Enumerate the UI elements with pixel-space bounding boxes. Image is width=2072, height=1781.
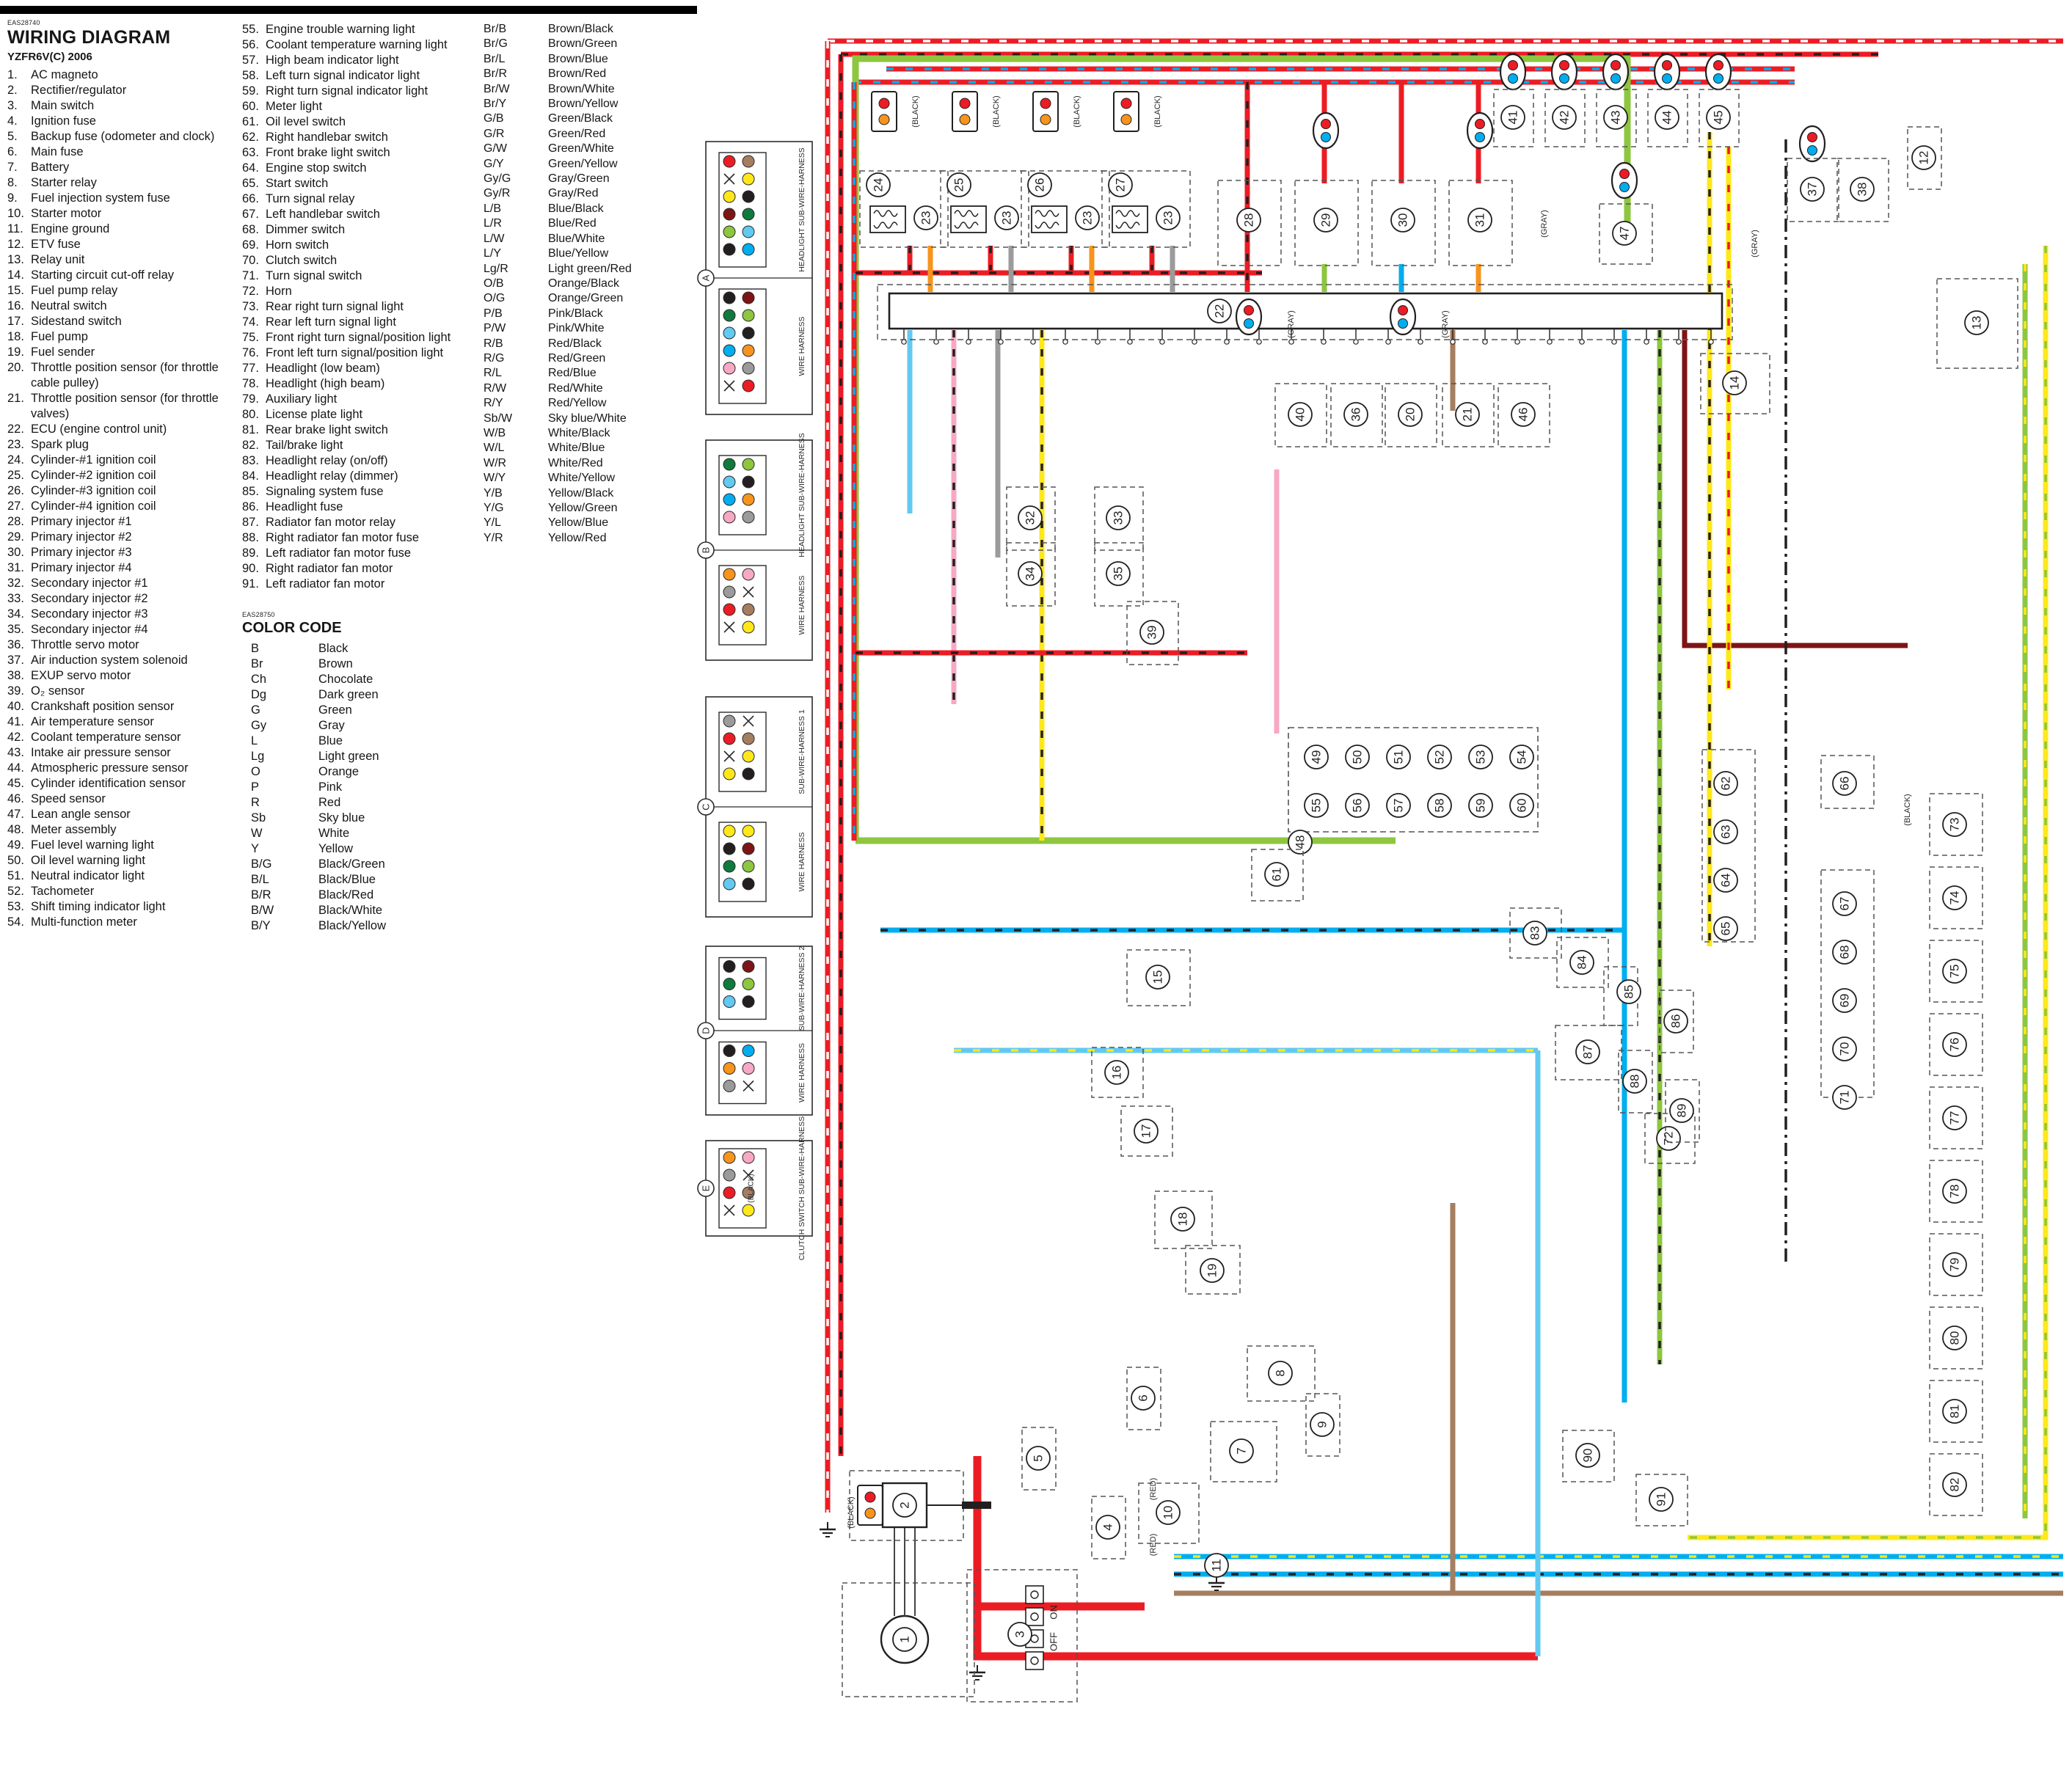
oval-connector bbox=[1236, 299, 1261, 334]
component-number: 36 bbox=[1349, 408, 1363, 422]
component-number: 52 bbox=[1433, 750, 1447, 764]
connector-dot bbox=[743, 750, 754, 762]
component-number: 23 bbox=[919, 211, 933, 225]
ecu-pin-terminal bbox=[1547, 340, 1552, 344]
component-number: 20 bbox=[1404, 408, 1418, 422]
component-number: 31 bbox=[1473, 213, 1487, 227]
component-number: 91 bbox=[1655, 1493, 1668, 1507]
component-number: 82 bbox=[1948, 1478, 1962, 1492]
ecu-pin-terminal bbox=[1128, 340, 1132, 344]
joint-letter: C bbox=[701, 803, 712, 810]
connector-dot bbox=[723, 586, 735, 598]
connector-dot bbox=[960, 98, 970, 109]
connector-dot bbox=[743, 380, 754, 392]
connector-dot bbox=[1040, 114, 1051, 125]
component-number: 17 bbox=[1139, 1124, 1153, 1138]
component-number: 81 bbox=[1948, 1405, 1962, 1419]
component-number: 90 bbox=[1581, 1449, 1595, 1463]
oval-connector bbox=[1552, 54, 1577, 89]
switch-position-off: OFF bbox=[1048, 1632, 1059, 1651]
ecu-pin-terminal bbox=[1321, 340, 1326, 344]
component-number: 22 bbox=[1213, 304, 1227, 318]
component-number: 40 bbox=[1294, 408, 1307, 422]
component-number: 63 bbox=[1719, 825, 1733, 839]
connector-dot bbox=[879, 98, 889, 109]
component-number: 61 bbox=[1270, 868, 1284, 882]
connector-dot bbox=[743, 568, 754, 580]
oval-connector bbox=[1467, 113, 1492, 148]
connector-dot bbox=[1714, 61, 1723, 70]
ecu-pin-terminal bbox=[1225, 340, 1229, 344]
component-number: 50 bbox=[1351, 750, 1365, 764]
harness-label: WIRE HARNESS bbox=[798, 316, 806, 376]
component-number: 86 bbox=[1669, 1014, 1683, 1028]
harness-label: WIRE HARNESS bbox=[798, 832, 806, 891]
ecu-pin-terminal bbox=[1451, 340, 1455, 344]
component-number: 67 bbox=[1838, 897, 1852, 911]
connector-dot bbox=[723, 825, 735, 837]
component-number: 14 bbox=[1728, 376, 1742, 390]
connector-dot bbox=[1321, 120, 1331, 129]
connector-dot bbox=[1714, 74, 1723, 84]
ignition-coil-symbol bbox=[1112, 206, 1148, 233]
connector-dot bbox=[723, 996, 735, 1008]
component-number: 5 bbox=[1032, 1455, 1046, 1461]
connector-dot bbox=[723, 345, 735, 356]
component-number: 85 bbox=[1622, 985, 1636, 999]
component-number: 7 bbox=[1235, 1447, 1249, 1454]
pin-connector bbox=[1114, 92, 1139, 131]
component-number: 19 bbox=[1205, 1264, 1219, 1278]
connector-dot bbox=[1611, 74, 1621, 84]
component-number: 74 bbox=[1948, 891, 1962, 905]
component-number: 70 bbox=[1838, 1042, 1852, 1056]
component-number: 26 bbox=[1033, 178, 1047, 192]
connector-dot bbox=[723, 843, 735, 855]
connector-dot bbox=[1620, 169, 1630, 179]
harness-label: HEADLIGHT SUB-WIRE-HARNESS bbox=[798, 147, 806, 272]
wiring-schematic: HEADLIGHT SUB-WIRE-HARNESSWIRE HARNESSAH… bbox=[0, 0, 2072, 1781]
component-number: 76 bbox=[1948, 1038, 1962, 1052]
component-number: 83 bbox=[1528, 926, 1542, 940]
connector-dot bbox=[743, 1204, 754, 1216]
connector-dot bbox=[723, 327, 735, 339]
component-number: 25 bbox=[952, 178, 966, 192]
component-number: 11 bbox=[1210, 1559, 1224, 1572]
connector-color-tag: (GRAY) bbox=[1540, 210, 1549, 238]
connector-dot bbox=[743, 156, 754, 167]
component-number: 77 bbox=[1948, 1111, 1962, 1125]
component-number: 64 bbox=[1719, 874, 1733, 888]
connector-dot bbox=[1509, 74, 1518, 84]
ecu-pin-terminal bbox=[1709, 340, 1713, 344]
connector-dot bbox=[723, 878, 735, 890]
component-number: 1 bbox=[898, 1636, 912, 1642]
ecu-pin-terminal bbox=[1483, 340, 1487, 344]
connector-color-tag: (BLACK) bbox=[748, 1174, 756, 1202]
connector-dot bbox=[723, 156, 735, 167]
component-number: 23 bbox=[1161, 211, 1175, 225]
connector-dot bbox=[1560, 61, 1569, 70]
connector-dot bbox=[743, 208, 754, 220]
connector-dot bbox=[723, 511, 735, 523]
connector-dot bbox=[743, 1152, 754, 1163]
connector-dot bbox=[743, 494, 754, 505]
component-number: 3 bbox=[1013, 1631, 1027, 1637]
connector-dot bbox=[723, 860, 735, 872]
connector-dot bbox=[1663, 74, 1672, 84]
connector-dot bbox=[723, 244, 735, 255]
connector-dot bbox=[743, 476, 754, 488]
oval-connector bbox=[1390, 299, 1415, 334]
component-number: 62 bbox=[1719, 777, 1733, 791]
ecu-bar bbox=[889, 293, 1722, 329]
ecu-pin-terminal bbox=[1095, 340, 1100, 344]
meter-assembly-box bbox=[1288, 728, 1538, 832]
component-number: 51 bbox=[1392, 750, 1406, 764]
connector-dot bbox=[743, 244, 754, 255]
main-switch-pin bbox=[1031, 1591, 1038, 1598]
component-number: 8 bbox=[1274, 1369, 1288, 1376]
oval-connector bbox=[1612, 163, 1637, 198]
switch-position-on: ON bbox=[1048, 1605, 1059, 1620]
connector-dot bbox=[1808, 146, 1817, 156]
wire bbox=[1685, 330, 1908, 646]
component-number: 88 bbox=[1628, 1075, 1642, 1089]
connector-dot bbox=[723, 768, 735, 780]
connector-dot bbox=[743, 345, 754, 356]
connector-dot bbox=[1244, 319, 1254, 329]
connector-dot bbox=[1398, 306, 1408, 315]
component-number: 43 bbox=[1609, 111, 1623, 125]
component-number: 38 bbox=[1856, 183, 1869, 197]
component-number: 59 bbox=[1474, 799, 1488, 813]
component-number: 23 bbox=[1081, 211, 1095, 225]
component-number: 68 bbox=[1838, 946, 1852, 959]
joint-letter: B bbox=[701, 547, 712, 554]
component-number: 54 bbox=[1515, 750, 1529, 764]
connector-dot bbox=[1040, 98, 1051, 109]
oval-connector bbox=[1655, 54, 1679, 89]
component-number: 84 bbox=[1575, 956, 1589, 970]
component-number: 24 bbox=[872, 178, 886, 192]
component-number: 46 bbox=[1517, 408, 1531, 422]
component-number: 56 bbox=[1351, 799, 1365, 813]
component-number: 2 bbox=[898, 1502, 912, 1508]
component-number: 44 bbox=[1660, 111, 1674, 125]
component-number: 39 bbox=[1145, 626, 1159, 640]
component-number: 73 bbox=[1948, 818, 1962, 832]
connector-dot bbox=[743, 825, 754, 837]
ecu-pin-terminal bbox=[1063, 340, 1068, 344]
component-number: 89 bbox=[1675, 1104, 1689, 1118]
connector-dot bbox=[1509, 61, 1518, 70]
connector-color-tag: (BLACK) bbox=[1903, 794, 1912, 825]
ecu-pin-terminal bbox=[1515, 340, 1520, 344]
component-number: 32 bbox=[1024, 511, 1037, 525]
component-number: 75 bbox=[1948, 965, 1962, 979]
connector-dot bbox=[865, 1508, 875, 1518]
connector-dot bbox=[743, 362, 754, 374]
oval-connector bbox=[1603, 54, 1628, 89]
main-switch-pin bbox=[1031, 1657, 1038, 1664]
connector-dot bbox=[743, 310, 754, 321]
oval-connector bbox=[1706, 54, 1731, 89]
connector-dot bbox=[743, 1045, 754, 1057]
component-number: 33 bbox=[1112, 511, 1126, 525]
component-number: 41 bbox=[1506, 111, 1520, 125]
connector-color-tag: (BLACK) bbox=[847, 1496, 856, 1528]
ignition-coil-symbol bbox=[870, 206, 905, 233]
connector-dot bbox=[743, 292, 754, 304]
harness-label: SUB-WIRE-HARNESS 2 bbox=[798, 946, 806, 1031]
ecu-pin-terminal bbox=[1257, 340, 1261, 344]
connector-dot bbox=[865, 1492, 875, 1502]
oval-connector bbox=[1800, 126, 1825, 161]
connector-dot bbox=[960, 114, 970, 125]
pin-connector bbox=[872, 92, 897, 131]
pin-connector bbox=[952, 92, 977, 131]
connector-dot bbox=[723, 1152, 735, 1163]
connector-dot bbox=[1321, 133, 1331, 142]
component-number: 12 bbox=[1917, 151, 1931, 165]
ecu-pin-terminal bbox=[1386, 340, 1390, 344]
component-number: 79 bbox=[1948, 1258, 1962, 1272]
wire bbox=[856, 59, 1627, 841]
connector-dot bbox=[723, 458, 735, 470]
connector-dot bbox=[1620, 183, 1630, 192]
connector-dot bbox=[723, 362, 735, 374]
harness-label: WIRE HARNESS bbox=[798, 1043, 806, 1102]
connector-dot bbox=[723, 226, 735, 238]
connector-dot bbox=[743, 621, 754, 633]
connector-dot bbox=[743, 979, 754, 990]
component-number: 10 bbox=[1161, 1506, 1175, 1520]
joint-letter: A bbox=[701, 274, 712, 281]
connector-dot bbox=[723, 568, 735, 580]
component-number: 47 bbox=[1618, 227, 1632, 241]
component-number: 57 bbox=[1392, 799, 1406, 813]
component-number: 9 bbox=[1316, 1421, 1329, 1427]
connector-dot bbox=[723, 1045, 735, 1057]
component-number: 87 bbox=[1581, 1045, 1595, 1059]
connector-color-tag: (BLACK) bbox=[1073, 95, 1081, 127]
component-number: 71 bbox=[1838, 1091, 1852, 1105]
connector-dot bbox=[723, 310, 735, 321]
component-number: 18 bbox=[1176, 1213, 1190, 1226]
connector-dot bbox=[743, 327, 754, 339]
connector-color-tag: (GRAY) bbox=[1441, 310, 1450, 338]
component-number: 78 bbox=[1948, 1185, 1962, 1199]
component-number: 66 bbox=[1838, 777, 1852, 791]
connector-dot bbox=[1475, 133, 1485, 142]
connector-dot bbox=[743, 843, 754, 855]
connector-dot bbox=[1475, 120, 1485, 129]
ecu-pin-terminal bbox=[902, 340, 906, 344]
wire bbox=[1688, 246, 2046, 1537]
component-number: 34 bbox=[1024, 567, 1037, 581]
component-number: 45 bbox=[1712, 111, 1726, 125]
component-number: 13 bbox=[1970, 316, 1984, 330]
connector-dot bbox=[743, 191, 754, 202]
component-number: 30 bbox=[1396, 213, 1410, 227]
ecu-pin-terminal bbox=[1418, 340, 1423, 344]
connector-dot bbox=[743, 996, 754, 1008]
connector-dot bbox=[723, 208, 735, 220]
connector-dot bbox=[723, 604, 735, 615]
ecu-pin-terminal bbox=[1644, 340, 1649, 344]
connector-dot bbox=[723, 494, 735, 505]
component-number: 58 bbox=[1433, 799, 1447, 813]
component-number: 60 bbox=[1515, 799, 1529, 813]
oval-connector bbox=[1313, 113, 1338, 148]
ecu-pin-terminal bbox=[1677, 340, 1681, 344]
wiring-diagram-page: EAS28740 WIRING DIAGRAM YZFR6V(C) 2006 1… bbox=[0, 0, 2072, 1781]
connector-dot bbox=[1611, 61, 1621, 70]
connector-dot bbox=[1663, 61, 1672, 70]
joint-letter: E bbox=[701, 1185, 712, 1191]
connector-color-tag: (BLACK) bbox=[1153, 95, 1162, 127]
connector-dot bbox=[723, 476, 735, 488]
ecu-pin-terminal bbox=[1612, 340, 1616, 344]
connector-dot bbox=[879, 114, 889, 125]
connector-dot bbox=[1398, 319, 1408, 329]
component-number: 28 bbox=[1242, 213, 1256, 227]
connector-dot bbox=[723, 1080, 735, 1092]
connector-dot bbox=[743, 733, 754, 745]
connector-dot bbox=[723, 292, 735, 304]
connector-dot bbox=[723, 1063, 735, 1075]
ignition-coil-symbol bbox=[951, 206, 986, 233]
connector-dot bbox=[743, 961, 754, 973]
connector-dot bbox=[743, 511, 754, 523]
connector-dot bbox=[1808, 133, 1817, 142]
connector-dot bbox=[743, 768, 754, 780]
oval-connector bbox=[1500, 54, 1525, 89]
component-number: 29 bbox=[1319, 213, 1333, 227]
connector-dot bbox=[743, 226, 754, 238]
connector-dot bbox=[1121, 114, 1131, 125]
component-number: 65 bbox=[1719, 922, 1733, 936]
component-number: 55 bbox=[1310, 799, 1324, 813]
component-number: 69 bbox=[1838, 994, 1852, 1008]
component-number: 37 bbox=[1806, 183, 1820, 197]
ecu-pin-terminal bbox=[1160, 340, 1164, 344]
ecu-pin-terminal bbox=[1289, 340, 1294, 344]
connector-dot bbox=[723, 733, 735, 745]
component-number: 72 bbox=[1662, 1132, 1676, 1146]
component-number: 53 bbox=[1474, 750, 1488, 764]
rectifier-terminal bbox=[962, 1502, 991, 1509]
connector-dot bbox=[1244, 306, 1254, 315]
wire-stripe bbox=[1688, 246, 2046, 1537]
connector-dot bbox=[723, 1187, 735, 1199]
component-number: 27 bbox=[1114, 178, 1128, 192]
harness-label: HEADLIGHT SUB-WIRE-HARNESS bbox=[798, 433, 806, 557]
connector-color-tag: (RED) bbox=[1149, 1478, 1158, 1501]
component-number: 42 bbox=[1558, 111, 1572, 125]
ignition-coil-symbol bbox=[1032, 206, 1067, 233]
connector-dot bbox=[743, 1063, 754, 1075]
component-number: 15 bbox=[1151, 970, 1165, 984]
connector-dot bbox=[1560, 74, 1569, 84]
connector-dot bbox=[723, 191, 735, 202]
joint-letter: D bbox=[701, 1027, 712, 1034]
component-number: 4 bbox=[1101, 1524, 1115, 1530]
connector-dot bbox=[723, 1169, 735, 1181]
component-number: 21 bbox=[1461, 408, 1475, 422]
pin-connector bbox=[858, 1485, 883, 1525]
component-number: 23 bbox=[1000, 211, 1014, 225]
component-number: 16 bbox=[1110, 1066, 1124, 1080]
component-number: 80 bbox=[1948, 1331, 1962, 1345]
connector-dot bbox=[723, 961, 735, 973]
connector-color-tag: (BLACK) bbox=[911, 95, 920, 127]
component-number: 48 bbox=[1294, 835, 1307, 849]
connector-color-tag: (GRAY) bbox=[1287, 310, 1296, 338]
connector-dot bbox=[743, 458, 754, 470]
ecu-pin-terminal bbox=[934, 340, 938, 344]
ecu-pin-terminal bbox=[999, 340, 1003, 344]
connector-dot bbox=[723, 979, 735, 990]
connector-color-tag: (GRAY) bbox=[1751, 230, 1759, 257]
component-number: 6 bbox=[1137, 1394, 1150, 1401]
pin-connector bbox=[1033, 92, 1058, 131]
component-number: 35 bbox=[1112, 567, 1126, 581]
connector-dot bbox=[743, 604, 754, 615]
ecu-pin-terminal bbox=[1031, 340, 1035, 344]
connector-dot bbox=[1121, 98, 1131, 109]
connector-dot bbox=[743, 173, 754, 185]
ecu-pin-terminal bbox=[966, 340, 971, 344]
connector-color-tag: (BLACK) bbox=[992, 95, 1001, 127]
connector-dot bbox=[723, 715, 735, 727]
connector-color-tag: (RED) bbox=[1149, 1534, 1158, 1557]
ecu-pin-terminal bbox=[1580, 340, 1584, 344]
harness-label: WIRE HARNESS bbox=[798, 575, 806, 634]
connector-dot bbox=[743, 860, 754, 872]
component-number: 49 bbox=[1310, 750, 1324, 764]
connector-dot bbox=[743, 878, 754, 890]
harness-label: CLUTCH SWITCH SUB-WIRE-HARNESS bbox=[798, 1116, 806, 1261]
main-switch-pin bbox=[1031, 1613, 1038, 1620]
ecu-pin-terminal bbox=[1354, 340, 1358, 344]
ecu-pin-terminal bbox=[1192, 340, 1197, 344]
harness-label: SUB-WIRE-HARNESS 1 bbox=[798, 709, 806, 794]
